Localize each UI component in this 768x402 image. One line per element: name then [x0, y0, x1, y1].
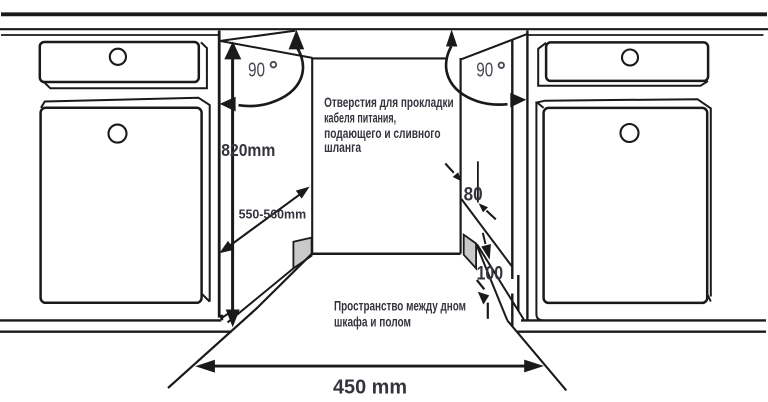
svg-text:Отверстия для прокладки: Отверстия для прокладки: [324, 94, 454, 110]
svg-text:Пространство между дном: Пространство между дном: [334, 297, 466, 313]
svg-text:820mm: 820mm: [221, 140, 275, 160]
svg-text:кабеля питания,: кабеля питания,: [324, 110, 396, 126]
svg-text:90: 90: [476, 60, 493, 82]
svg-text:550-560mm: 550-560mm: [239, 207, 307, 222]
svg-text:100: 100: [477, 263, 504, 284]
svg-text:450 mm: 450 mm: [333, 377, 407, 399]
svg-text:шкафа и полом: шкафа и полом: [334, 314, 411, 330]
svg-text:шланга: шланга: [324, 139, 361, 155]
svg-text:80: 80: [464, 185, 483, 206]
svg-text:90: 90: [248, 60, 265, 82]
